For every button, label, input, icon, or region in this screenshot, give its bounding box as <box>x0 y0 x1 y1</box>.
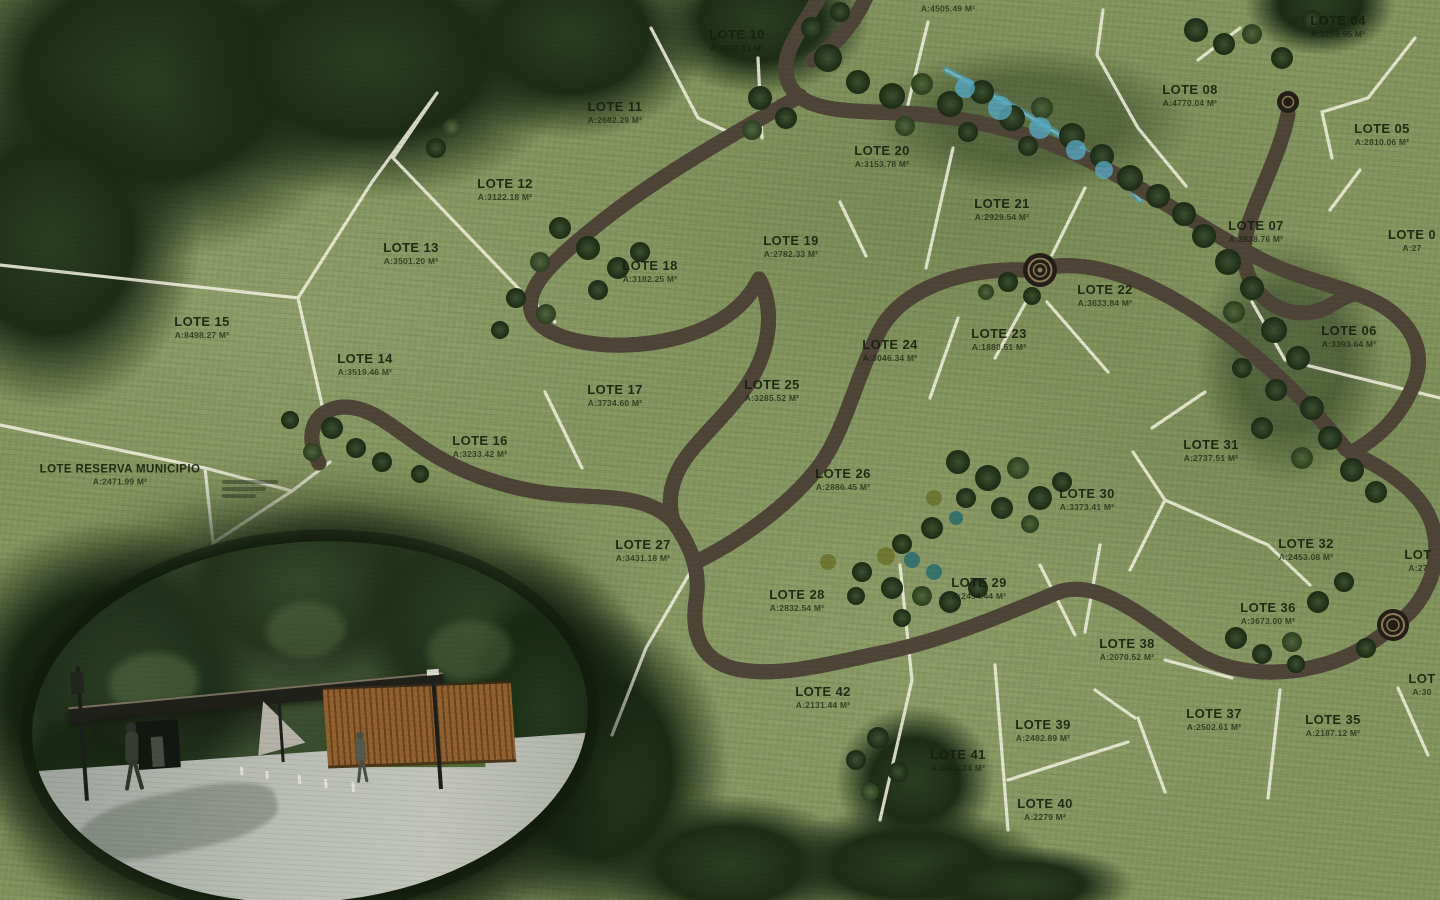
tree-icon <box>881 577 903 599</box>
tree-icon <box>530 252 550 272</box>
tree-icon <box>991 497 1013 519</box>
tree-icon <box>491 321 509 339</box>
tree-icon <box>576 236 600 260</box>
tree-icon <box>975 465 1001 491</box>
tree-icon <box>1307 591 1329 613</box>
illegible-label-smudge <box>222 477 278 503</box>
tree-icon <box>1232 358 1252 378</box>
tree-icon <box>801 17 823 39</box>
tree-icon <box>846 750 866 770</box>
tree-icon <box>1265 379 1287 401</box>
roundabouts <box>1023 91 1409 641</box>
tree-icon <box>1172 202 1196 226</box>
tree-icon <box>506 288 526 308</box>
tree-icon <box>1251 417 1273 439</box>
tree-icon <box>949 511 963 525</box>
inset-slat-fence <box>323 681 517 768</box>
tree-icon <box>1023 287 1041 305</box>
bollard-light <box>324 779 328 788</box>
tree-icon <box>921 517 943 539</box>
tree-icon <box>814 44 842 72</box>
tree-icon <box>1287 655 1305 673</box>
tree-icon <box>346 438 366 458</box>
tree-icon <box>372 452 392 472</box>
tree-icon <box>867 727 889 749</box>
tree-icon <box>1365 481 1387 503</box>
tree-icon <box>1261 317 1287 343</box>
bollard-light <box>240 767 244 775</box>
tree-icon <box>893 609 911 627</box>
tree-icon <box>946 450 970 474</box>
tree-icon <box>1302 10 1322 30</box>
tree-icon <box>426 138 446 158</box>
tree-icon <box>1146 184 1170 208</box>
person-silhouette <box>352 731 371 776</box>
tree-icon <box>588 280 608 300</box>
tree-icon <box>830 2 850 22</box>
tree-icon <box>877 547 895 565</box>
tree-icon <box>846 70 870 94</box>
tree-icon <box>536 304 556 324</box>
tree-icon <box>1031 97 1053 119</box>
tree-icon <box>1215 249 1241 275</box>
tree-icon <box>1318 426 1342 450</box>
tree-icon <box>1286 346 1310 370</box>
tree-icon <box>321 417 343 439</box>
water-spot <box>1066 140 1086 160</box>
tree-icon <box>607 257 629 279</box>
tree-icon <box>1018 136 1038 156</box>
water-spot <box>988 96 1012 120</box>
tree-icon <box>847 587 865 605</box>
tree-icon <box>1007 457 1029 479</box>
tree-icon <box>1052 472 1072 492</box>
tree-icon <box>1225 627 1247 649</box>
tree-icon <box>852 562 872 582</box>
tree-icon <box>1213 33 1235 55</box>
tree-icon <box>775 107 797 129</box>
tree-icon <box>1271 47 1293 69</box>
inset-gatehouse-door <box>151 736 165 767</box>
tree-icon <box>1282 632 1302 652</box>
bollard-light <box>298 775 302 784</box>
tree-icon <box>911 73 933 95</box>
tree-icon <box>926 490 942 506</box>
tree-icon <box>1240 276 1264 300</box>
tree-icon <box>820 554 836 570</box>
tree-icon <box>956 488 976 508</box>
tree-icon <box>1291 447 1313 469</box>
tree-icon <box>748 86 772 110</box>
tree-icon <box>281 411 299 429</box>
tree-icon <box>998 272 1018 292</box>
tree-icon <box>978 284 994 300</box>
tree-icon <box>1356 638 1376 658</box>
tree-icon <box>888 762 908 782</box>
tree-icon <box>1300 396 1324 420</box>
tree-icon <box>1117 165 1143 191</box>
tree-icon <box>926 564 942 580</box>
tree-icon <box>904 552 920 568</box>
tree-icon <box>892 534 912 554</box>
tree-icon <box>1184 18 1208 42</box>
tree-icon <box>443 119 461 137</box>
tree-icon <box>861 783 879 801</box>
tree-icon <box>879 83 905 109</box>
lamp-post-cap <box>427 669 439 676</box>
tree-icon <box>1192 224 1216 248</box>
tree-icon <box>303 443 321 461</box>
tree-icon <box>1223 301 1245 323</box>
lamp-post-sign <box>70 672 85 695</box>
tree-icon <box>1252 644 1272 664</box>
entrance-photo-inset <box>20 523 600 900</box>
water-spot <box>1029 117 1051 139</box>
bollard-light <box>351 782 355 792</box>
tree-icon <box>1021 515 1039 533</box>
tree-icon <box>742 120 762 140</box>
tree-icon <box>958 122 978 142</box>
water-spot <box>955 78 975 98</box>
tree-icon <box>411 465 429 483</box>
tree-icon <box>1334 572 1354 592</box>
tree-icon <box>549 217 571 239</box>
tree-icon <box>968 578 988 598</box>
tree-icon <box>1028 486 1052 510</box>
water-spot <box>1095 161 1113 179</box>
bollard-light <box>265 771 269 779</box>
site-plan-map: A:4505.49 M²LOTE 10A:2807.11 M²LOTE 11A:… <box>0 0 1440 900</box>
tree-icon <box>1340 458 1364 482</box>
tree-icon <box>939 591 961 613</box>
tree-icon <box>630 242 650 262</box>
tree-icon <box>1242 24 1262 44</box>
tree-icon <box>895 116 915 136</box>
person-silhouette <box>116 721 152 803</box>
tree-icon <box>912 586 932 606</box>
